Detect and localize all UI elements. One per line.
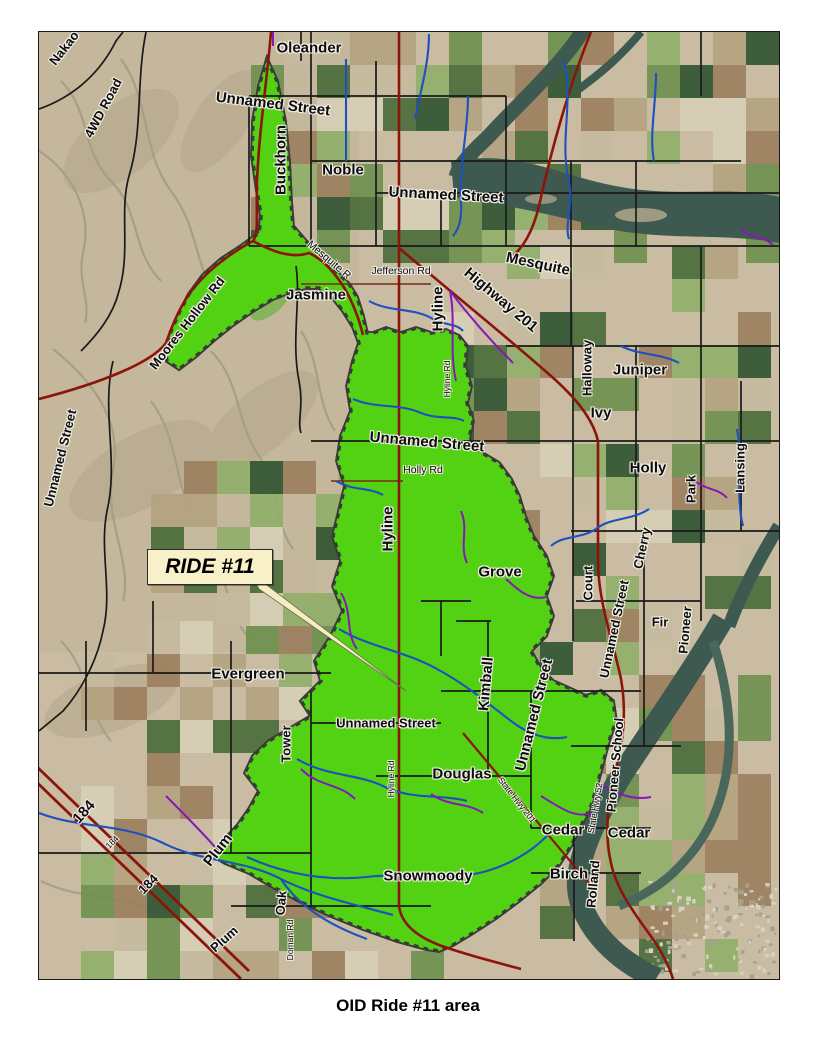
page: Nakao4WD RoadOleanderUnnamed StreetBuckh… bbox=[0, 0, 816, 1056]
ride-area-callout-label: RIDE #11 bbox=[165, 555, 255, 579]
map-caption: OID Ride #11 area bbox=[38, 996, 778, 1016]
map-art bbox=[39, 32, 779, 979]
map-canvas[interactable]: Nakao4WD RoadOleanderUnnamed StreetBuckh… bbox=[38, 31, 780, 980]
ride-area-callout: RIDE #11 bbox=[147, 549, 273, 585]
